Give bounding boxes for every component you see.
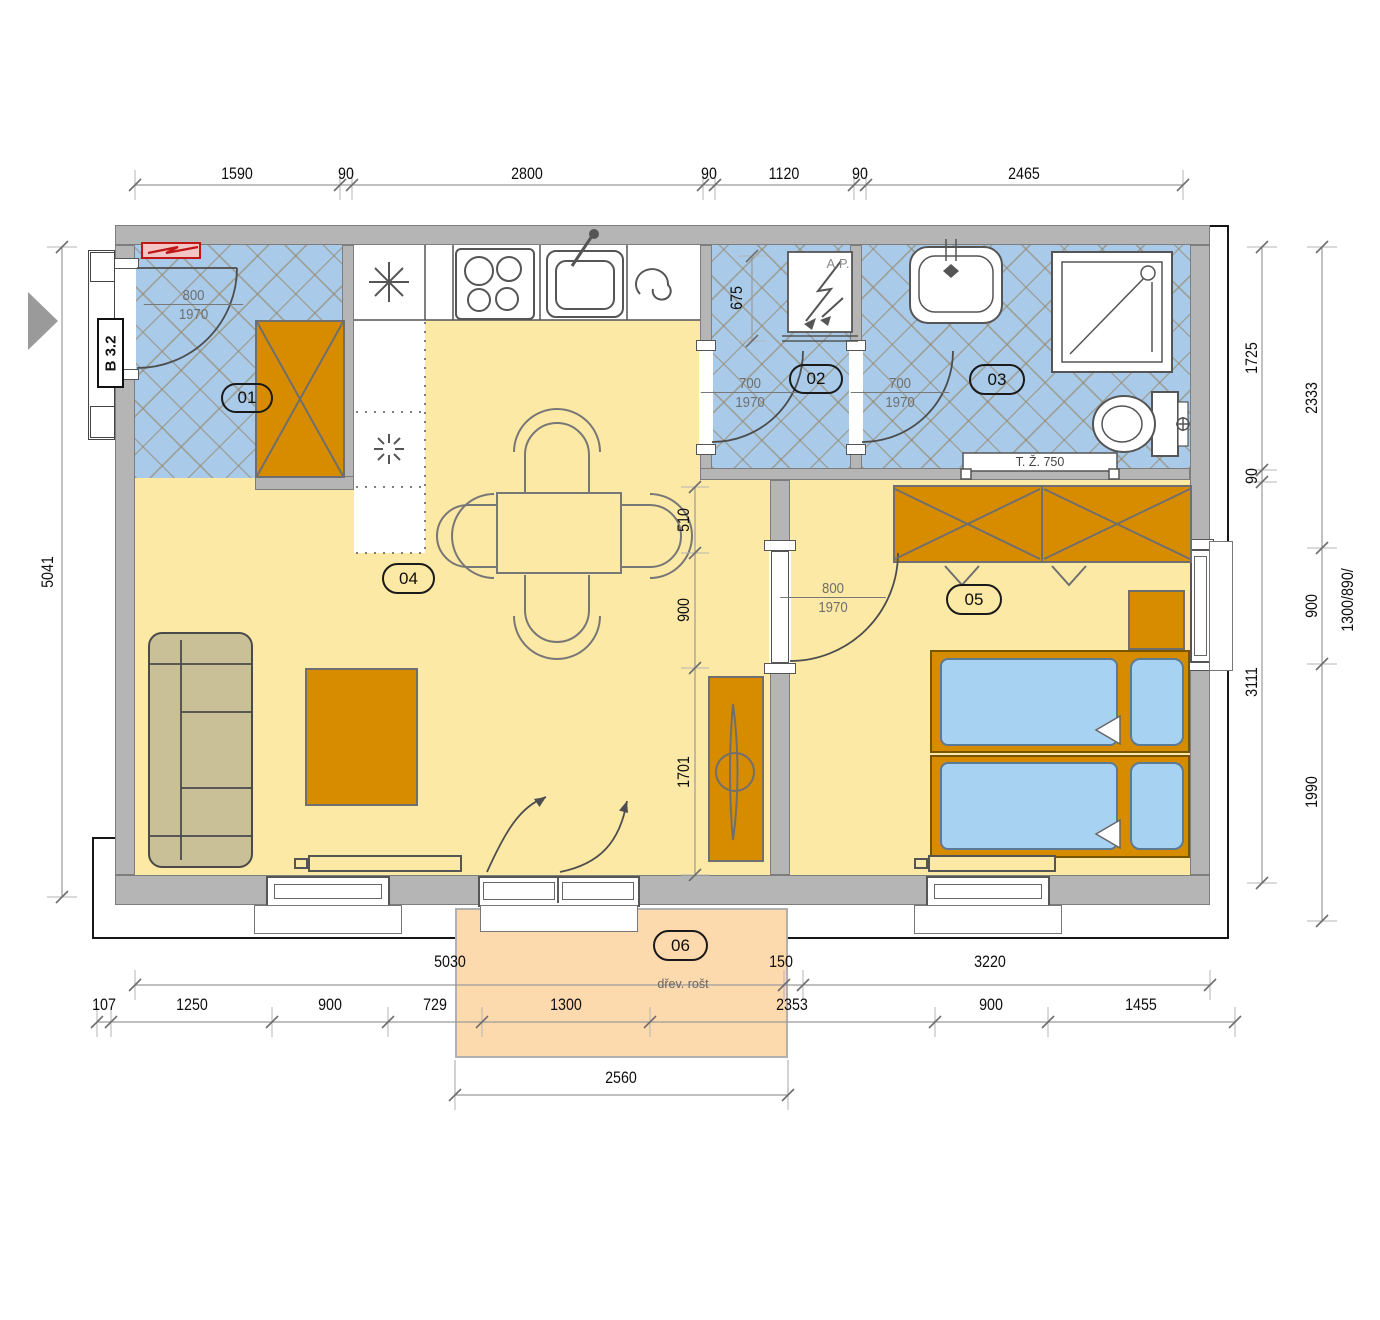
dim-b2-107: 107: [87, 995, 121, 1015]
dim-left-5041: 5041: [38, 547, 58, 597]
dim-b1-150: 150: [764, 952, 798, 972]
dim-b2-729: 729: [410, 995, 460, 1015]
bedroom-door-height: 1970: [818, 599, 847, 616]
room-label-05: 05: [946, 584, 1002, 615]
electrical-panel: [141, 242, 201, 259]
bedroom-jamb-bottom: [764, 663, 796, 674]
coffee-table: [305, 668, 418, 806]
entry-door-spec: 800 1970: [144, 288, 243, 322]
dim-rin-1725: 1725: [1242, 333, 1262, 383]
dim-rout-900: 900: [1302, 581, 1322, 631]
dim-b2-2353: 2353: [763, 995, 822, 1015]
dim-b1-5030: 5030: [416, 952, 483, 972]
wall-bath-bottom: [700, 468, 1190, 480]
dim-rin-3111: 3111: [1242, 657, 1262, 707]
dim-rout-2333: 2333: [1302, 373, 1322, 423]
spec-divider: [851, 392, 950, 393]
sofa: [148, 632, 253, 868]
living-window-sill: [254, 905, 402, 934]
bedroom-door-spec: 800 1970: [780, 581, 886, 615]
dim-top-90b: 90: [692, 164, 726, 184]
terrace-door-sill: [480, 905, 638, 932]
dim-top-2800: 2800: [493, 164, 560, 184]
dim-rin-90: 90: [1242, 459, 1262, 493]
wall-hall-stub: [255, 476, 354, 490]
bedroom-side-window-sill: [1209, 541, 1233, 671]
bedroom-side-window-glass: [1194, 556, 1207, 656]
living-radiator-valve: [294, 858, 308, 869]
dining-table: [496, 492, 622, 574]
wall-living-bedroom-a: [770, 480, 790, 548]
wall-top: [115, 225, 1210, 245]
bath-door-height: 1970: [885, 394, 914, 411]
bedroom-window-glass: [934, 884, 1042, 899]
wc-door-height: 1970: [735, 394, 764, 411]
spec-divider: [780, 597, 886, 598]
entrance-door-label: B 3.2: [97, 318, 124, 388]
dim-b3-2560: 2560: [587, 1068, 654, 1088]
bed-2-mattress: [940, 762, 1118, 850]
dim-living-510: 510: [674, 495, 694, 545]
room-label-02: 02: [789, 364, 843, 394]
bedroom-radiator-valve: [914, 858, 928, 869]
bedroom-radiator: [928, 855, 1056, 872]
tv-cabinet: [708, 676, 764, 862]
entrance-arrow-icon: [28, 292, 58, 350]
dim-top-1120: 1120: [750, 164, 817, 184]
wc-door-spec: 700 1970: [701, 376, 800, 410]
dim-top-90a: 90: [329, 164, 363, 184]
wall-wc-left-a: [700, 245, 712, 348]
bed-2-pillow: [1130, 762, 1184, 850]
dim-b2-1300: 1300: [537, 995, 596, 1015]
dim-wc-675: 675: [727, 273, 747, 323]
dim-b2-900b: 900: [966, 995, 1016, 1015]
terrace-door-leaf-left: [483, 882, 555, 900]
bed-1-pillow: [1130, 658, 1184, 746]
wc-door-width: 700: [739, 375, 761, 392]
dim-b1-3220: 3220: [956, 952, 1023, 972]
wall-living-bedroom-b: [770, 665, 790, 875]
dim-top-1590: 1590: [203, 164, 270, 184]
spec-divider: [701, 392, 800, 393]
room-label-03: 03: [969, 364, 1025, 395]
floor-bath-03: [862, 245, 1190, 468]
dim-rout-1990: 1990: [1302, 767, 1322, 817]
entry-door-width: 800: [182, 287, 204, 304]
towel-radiator-label: T. Ž. 750: [990, 455, 1090, 469]
terrace-door-leaf-right: [562, 882, 634, 900]
bath-jamb-bottom: [846, 444, 866, 455]
living-radiator: [308, 855, 462, 872]
dim-living-1701: 1701: [674, 747, 694, 797]
entry-canopy-block-top: [90, 252, 115, 282]
bedroom-window-sill: [914, 905, 1062, 934]
bedroom-door-width: 800: [822, 580, 844, 597]
bedroom-wardrobe: [893, 485, 1192, 563]
room-label-04: 04: [382, 563, 435, 594]
bath-jamb-top: [846, 340, 866, 351]
dim-b2-1455: 1455: [1112, 995, 1171, 1015]
window-spec-label: 1300/890/: [1338, 562, 1358, 638]
kitchen-counter-strip: [354, 245, 700, 320]
nightstand: [1128, 590, 1185, 650]
kitchen-appliance-column: [354, 320, 425, 553]
room-label-06: 06: [653, 930, 708, 961]
floor-plan: 1590 90 2800 90 1120 90 2465 5041 1725 9…: [0, 0, 1380, 1320]
entry-canopy-block-bottom: [90, 406, 115, 438]
terrace-note: dřev. rošt: [633, 977, 733, 991]
bath-door-spec: 700 1970: [851, 376, 950, 410]
dim-b2-1250: 1250: [163, 995, 222, 1015]
room-label-01: 01: [221, 383, 273, 413]
bedroom-jamb-top: [764, 540, 796, 551]
wc-jamb-bottom: [696, 444, 716, 455]
bath-door-width: 700: [889, 375, 911, 392]
entrance-door-label-text: B 3.2: [102, 335, 119, 371]
dim-b2-900a: 900: [305, 995, 355, 1015]
dim-top-2465: 2465: [990, 164, 1057, 184]
wc-jamb-top: [696, 340, 716, 351]
entry-door-height: 1970: [179, 306, 208, 323]
boiler-label: A.P.: [818, 256, 858, 271]
bed-1-mattress: [940, 658, 1118, 746]
living-window-glass: [274, 884, 382, 899]
spec-divider: [144, 304, 243, 305]
dim-top-90c: 90: [843, 164, 877, 184]
dim-living-900: 900: [674, 585, 694, 635]
